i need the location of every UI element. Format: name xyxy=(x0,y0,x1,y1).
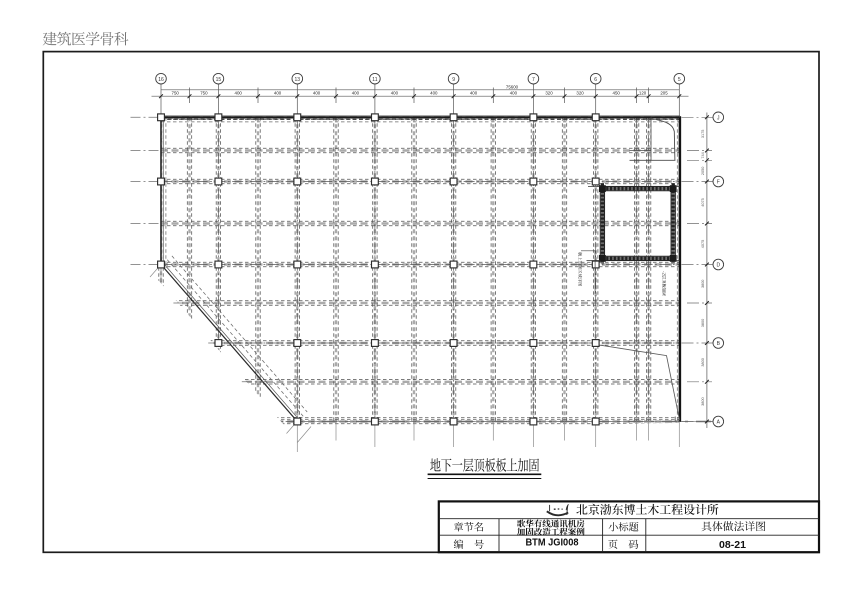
svg-text:400: 400 xyxy=(313,91,321,96)
svg-text:400: 400 xyxy=(352,91,360,96)
svg-text:BTM JGI008: BTM JGI008 xyxy=(526,537,579,548)
svg-text:3800: 3800 xyxy=(701,280,705,288)
svg-text:3175: 3175 xyxy=(701,130,705,138)
svg-text:400: 400 xyxy=(470,91,478,96)
svg-text:750: 750 xyxy=(200,91,208,96)
svg-text:744: 744 xyxy=(701,152,705,158)
svg-text:3800: 3800 xyxy=(701,397,705,405)
svg-text:400: 400 xyxy=(510,91,518,96)
svg-text:205: 205 xyxy=(660,91,668,96)
svg-text:2050: 2050 xyxy=(701,167,705,175)
svg-text:450: 450 xyxy=(613,91,621,96)
svg-text:320: 320 xyxy=(545,91,553,96)
svg-text:9: 9 xyxy=(452,77,455,83)
svg-text:15: 15 xyxy=(216,77,222,83)
svg-text:D: D xyxy=(716,263,720,269)
svg-text:400: 400 xyxy=(391,91,399,96)
svg-text:4075: 4075 xyxy=(701,240,705,248)
svg-text:F: F xyxy=(717,180,720,186)
svg-text:7: 7 xyxy=(532,77,535,83)
svg-text:6: 6 xyxy=(594,77,597,83)
svg-text:3800: 3800 xyxy=(701,319,705,327)
svg-text:400: 400 xyxy=(430,91,438,96)
svg-text:13: 13 xyxy=(295,77,301,83)
svg-text:5: 5 xyxy=(678,77,681,83)
svg-text:11: 11 xyxy=(372,77,377,83)
svg-text:08-21: 08-21 xyxy=(719,540,746,551)
svg-text:750: 750 xyxy=(172,91,180,96)
svg-text:3800: 3800 xyxy=(701,358,705,366)
svg-text:120: 120 xyxy=(639,91,647,96)
svg-text:400: 400 xyxy=(274,91,282,96)
svg-text:75600: 75600 xyxy=(506,84,519,89)
svg-text:16: 16 xyxy=(158,77,164,83)
svg-text:400: 400 xyxy=(235,91,243,96)
svg-text:4075: 4075 xyxy=(701,198,705,206)
svg-text:320: 320 xyxy=(576,91,584,96)
